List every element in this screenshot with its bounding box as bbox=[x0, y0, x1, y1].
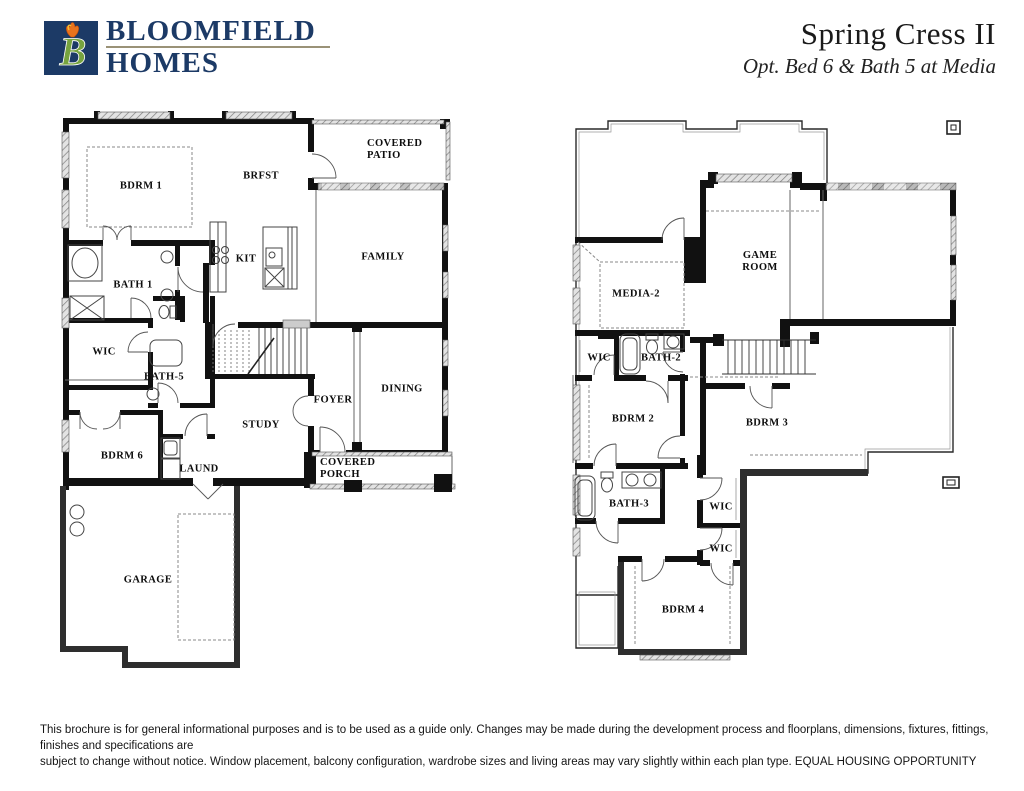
room-label-brfst: BRFST bbox=[243, 171, 279, 182]
room-label-dining: DINING bbox=[381, 384, 423, 395]
title-block: Spring Cress II Opt. Bed 6 & Bath 5 at M… bbox=[743, 16, 996, 79]
floor2-roofline bbox=[576, 121, 953, 648]
sink bbox=[644, 474, 656, 486]
disclaimer-line2: subject to change without notice. Window… bbox=[40, 754, 990, 770]
plan-subtitle: Opt. Bed 6 & Bath 5 at Media bbox=[743, 54, 996, 79]
room-label-bdrm6: BDRM 6 bbox=[101, 451, 143, 462]
room-label-bath5: BATH-5 bbox=[144, 372, 184, 383]
sink bbox=[626, 474, 638, 486]
room-label-bdrm3: BDRM 3 bbox=[746, 418, 788, 429]
room-label-family: FAMILY bbox=[361, 252, 404, 263]
room-label-wic-a: WIC bbox=[587, 353, 610, 364]
plan-title: Spring Cress II bbox=[743, 16, 996, 52]
room-label-wic-b: WIC bbox=[709, 502, 732, 513]
room-label-covered-porch: COVERED PORCH bbox=[320, 457, 375, 480]
room-label-foyer: FOYER bbox=[314, 395, 353, 406]
bathtub bbox=[68, 245, 102, 281]
room-label-bath1: BATH 1 bbox=[113, 280, 152, 291]
porch-column bbox=[434, 474, 452, 492]
room-label-laund: LAUND bbox=[179, 464, 218, 475]
room-label-garage: GARAGE bbox=[124, 575, 173, 586]
floor2-stairs bbox=[722, 340, 816, 374]
sink bbox=[667, 336, 679, 348]
bathtub bbox=[150, 340, 182, 366]
floor2-plan bbox=[573, 121, 960, 660]
room-label-bath2: BATH-2 bbox=[641, 353, 681, 364]
foyer-post bbox=[352, 442, 362, 450]
room-label-kit: KIT bbox=[236, 254, 256, 265]
logo-tulip-b-icon: B bbox=[44, 21, 98, 75]
room-label-study: STUDY bbox=[242, 420, 280, 431]
brand-name: BLOOMFIELD HOMES bbox=[106, 16, 330, 78]
floor1-windows bbox=[62, 112, 455, 489]
brochure-page: B BLOOMFIELD HOMES Spring Cress II Opt. … bbox=[0, 0, 1024, 791]
sink bbox=[161, 251, 173, 263]
brand-line2: HOMES bbox=[106, 48, 330, 78]
brand-line1: BLOOMFIELD bbox=[106, 16, 330, 48]
toilet bbox=[602, 478, 613, 492]
water-heater bbox=[70, 505, 84, 519]
room-label-game-room: GAME ROOM bbox=[742, 250, 777, 273]
bloomfield-logo: B bbox=[44, 21, 98, 75]
dryer bbox=[161, 459, 180, 479]
floor1-stairs bbox=[213, 320, 310, 374]
foyer-post bbox=[352, 324, 362, 332]
disclaimer: This brochure is for general information… bbox=[40, 722, 990, 770]
room-label-media2: MEDIA-2 bbox=[612, 289, 660, 300]
toilet-tank bbox=[601, 472, 613, 478]
room-label-bdrm4: BDRM 4 bbox=[662, 605, 704, 616]
toilet bbox=[159, 306, 169, 319]
floor1-thin-lines bbox=[65, 190, 452, 484]
room-label-wic-c: WIC bbox=[709, 544, 732, 555]
room-label-wic: WIC bbox=[92, 347, 115, 358]
water-heater bbox=[70, 522, 84, 536]
floor1-walls bbox=[63, 111, 450, 490]
room-label-bdrm2: BDRM 2 bbox=[612, 414, 654, 425]
room-label-covered-patio: COVERED PATIO bbox=[367, 138, 422, 161]
room-label-bdrm1: BDRM 1 bbox=[120, 181, 162, 192]
floorplan-canvas bbox=[0, 0, 1024, 791]
floor2-outer-walls bbox=[618, 469, 868, 655]
room-label-bath3: BATH-3 bbox=[609, 499, 649, 510]
disclaimer-line1: This brochure is for general information… bbox=[40, 722, 990, 754]
